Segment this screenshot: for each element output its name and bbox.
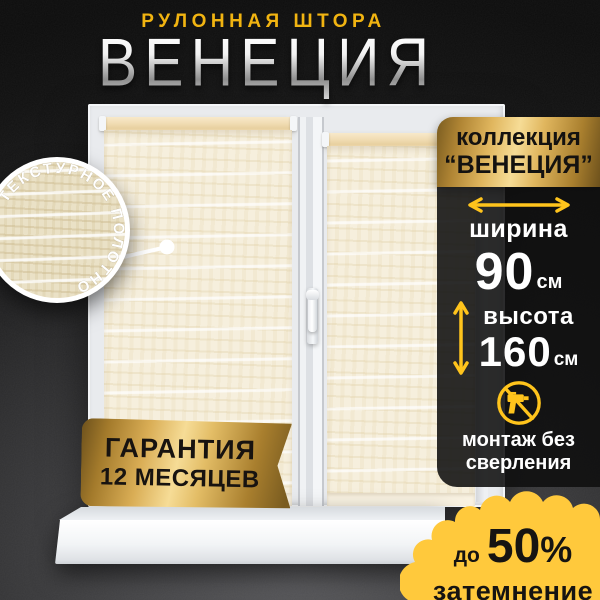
collection-name: “ВЕНЕЦИЯ” [444, 151, 593, 180]
collection-label: коллекция [456, 124, 581, 152]
handle-knob [306, 290, 319, 300]
swatch-label-text: ТЕКСТУРНОЕ ПОЛОТНО [0, 160, 127, 297]
warranty-title: ГАРАНТИЯ [105, 433, 257, 467]
dimout-label: затемнение [426, 576, 600, 600]
roller-bracket [99, 116, 106, 131]
roller-bracket [290, 116, 297, 131]
fabric-swatch-circle: ТЕКСТУРНОЕ ПОЛОТНО [0, 157, 130, 303]
width-arrow-icon [463, 197, 575, 213]
collection-header: коллекция “ВЕНЕЦИЯ” [437, 117, 600, 187]
swatch-curved-label: ТЕКСТУРНОЕ ПОЛОТНО [0, 157, 130, 303]
specs-panel: ширина 90 см высота 160 см [437, 187, 600, 487]
dimout-value: до 50 % [426, 524, 600, 570]
warranty-ribbon: ГАРАНТИЯ 12 МЕСЯЦЕВ [80, 418, 292, 510]
svg-text:ТЕКСТУРНОЕ ПОЛОТНО: ТЕКСТУРНОЕ ПОЛОТНО [0, 160, 127, 297]
warranty-duration: 12 МЕСЯЦЕВ [100, 463, 260, 495]
dimout-percent: % [540, 533, 572, 567]
roller-tube [102, 117, 294, 131]
dimout-badge: до 50 % затемнение [400, 490, 600, 600]
sill-front-face [55, 520, 445, 564]
height-label: высота [483, 303, 574, 331]
mount-caption-line1: монтаж без [462, 429, 575, 452]
dimout-number: 50 [487, 524, 540, 570]
width-value: 90 см [475, 246, 563, 298]
mount-caption-line2: сверления [462, 452, 575, 475]
roller-bracket [322, 132, 329, 147]
height-number: 160 [479, 331, 552, 373]
dimout-prefix: до [454, 546, 480, 566]
product-title: ВЕНЕЦИЯ [0, 26, 534, 100]
product-card: ТЕКСТУРНОЕ ПОЛОТНО РУЛОННАЯ ШТОРА ВЕНЕЦИ… [0, 0, 600, 600]
height-spec: высота 160 см [453, 299, 579, 377]
sill-top-surface [55, 507, 445, 520]
width-label: ширина [469, 215, 568, 244]
width-unit: см [536, 272, 562, 292]
height-unit: см [554, 350, 579, 369]
window-sill [55, 507, 445, 564]
window-mullion [298, 117, 324, 506]
window-handle [306, 288, 319, 344]
height-arrow-icon [453, 299, 469, 377]
height-value: 160 см [479, 331, 579, 373]
width-number: 90 [475, 246, 535, 298]
no-drill-icon [495, 379, 543, 427]
mount-caption: монтаж без сверления [462, 429, 575, 475]
